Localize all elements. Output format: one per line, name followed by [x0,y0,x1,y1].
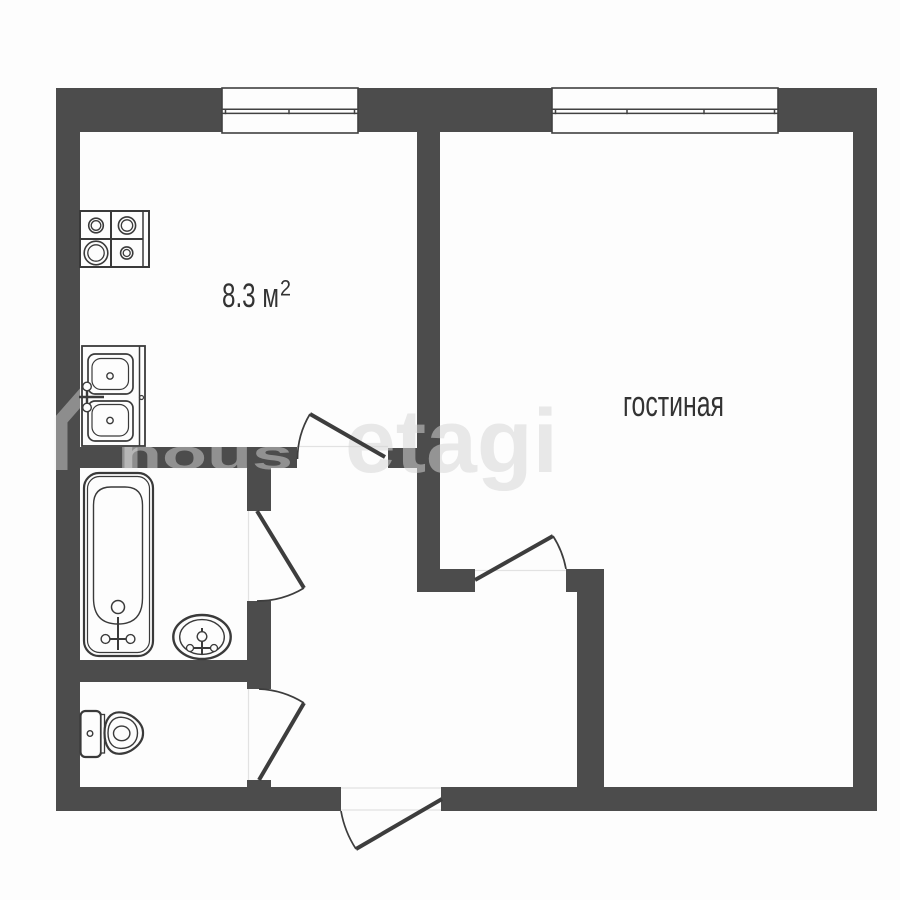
svg-text:2: 2 [280,276,291,301]
svg-text:гостиная: гостиная [623,383,724,424]
svg-text:8.3 м: 8.3 м [222,277,279,315]
svg-text:etagi: etagi [345,392,558,492]
